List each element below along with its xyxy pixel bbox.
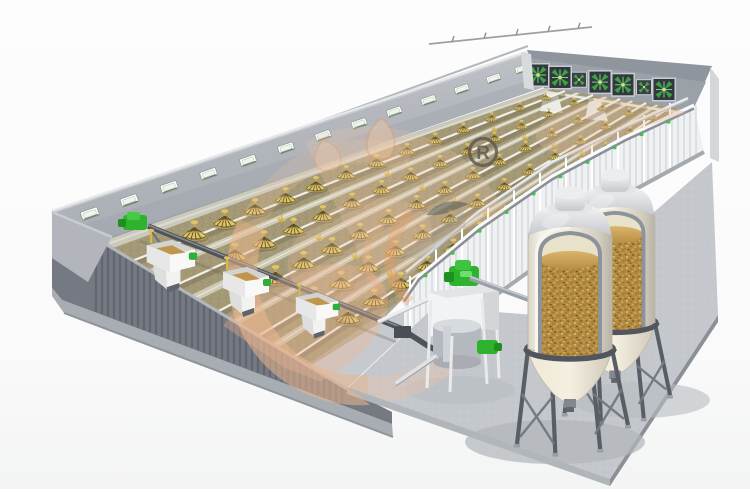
svg-text:R: R [476, 143, 490, 164]
